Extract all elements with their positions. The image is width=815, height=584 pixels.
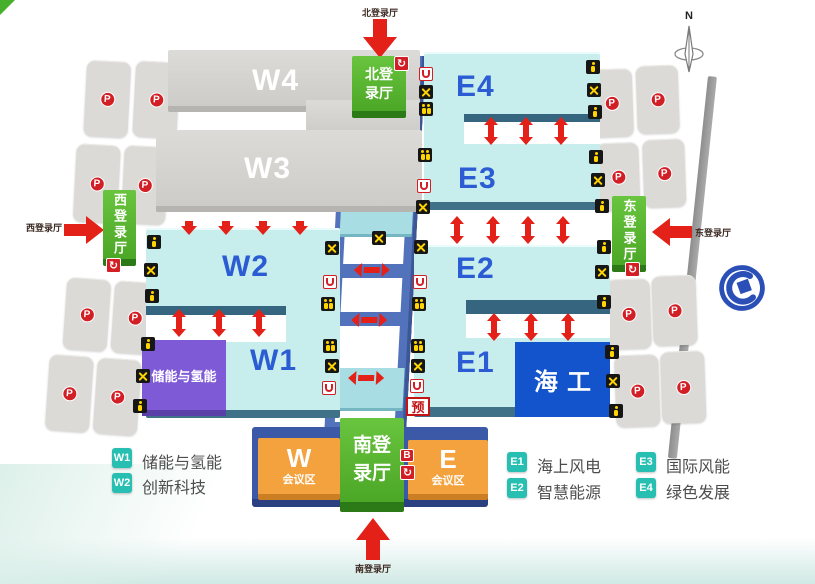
two-way-arrow xyxy=(171,310,187,336)
gate-icon xyxy=(147,235,161,249)
conference-west-label: 会议区 xyxy=(283,471,316,487)
east-entrance-arrow xyxy=(652,218,692,246)
two-way-arrow xyxy=(251,310,267,336)
restroom-icon xyxy=(323,339,337,353)
badge-pickup-icon: ↻ xyxy=(625,262,640,277)
restroom-icon xyxy=(418,148,432,162)
parking-lot: P xyxy=(83,60,131,138)
dining-icon xyxy=(325,359,339,373)
two-way-arrow xyxy=(349,370,384,386)
two-way-arrow xyxy=(354,262,389,278)
restroom-icon xyxy=(412,297,426,311)
two-way-arrow xyxy=(211,310,227,336)
corridor-cell xyxy=(341,278,403,312)
parking-icon: P xyxy=(656,165,672,181)
compass-north-label: N xyxy=(685,10,693,22)
two-way-arrow xyxy=(560,314,576,340)
entry-arrow xyxy=(181,221,197,236)
gate-icon xyxy=(605,345,619,359)
dining-icon xyxy=(419,85,433,99)
east-entrance-label: 东登录厅 xyxy=(695,226,731,239)
dining-icon xyxy=(414,240,428,254)
south-hall-text: 南登 xyxy=(353,432,391,461)
bus-stop-icon: B xyxy=(400,449,414,462)
badge-pickup-icon: ↻ xyxy=(400,465,415,480)
parking-lot: P xyxy=(651,275,697,346)
legend-badge-e1: E1 xyxy=(507,452,527,472)
two-way-arrow xyxy=(449,217,465,243)
gate-icon xyxy=(141,337,155,351)
two-way-arrow xyxy=(555,217,571,243)
legend-label-e4: 绿色发展 xyxy=(666,479,730,503)
parking-icon: P xyxy=(650,92,666,108)
zone-offshore: 海工 xyxy=(515,342,610,417)
hall-e4-label: E4 xyxy=(456,70,495,104)
compass: N xyxy=(666,6,712,70)
north-hall-text: 北登 xyxy=(365,65,393,84)
entry-arrow xyxy=(292,221,308,236)
parking-lot: P xyxy=(642,138,686,207)
west-registration-hall: 西登录厅 xyxy=(103,190,136,266)
dining-icon xyxy=(595,265,609,279)
corner-accent-top-left xyxy=(0,0,15,15)
west-entrance-arrow xyxy=(64,216,104,244)
hall-e2-label: E2 xyxy=(456,252,495,286)
two-way-arrow xyxy=(520,217,536,243)
parking-icon: P xyxy=(604,95,620,111)
hall-w1-label: W1 xyxy=(250,344,297,378)
gate-icon xyxy=(145,289,159,303)
parking-icon: P xyxy=(611,169,627,185)
dining-icon xyxy=(411,359,425,373)
parking-icon: P xyxy=(137,177,153,193)
two-way-arrow xyxy=(483,118,499,144)
conference-west-letter: W xyxy=(287,445,312,471)
hall-w3-label: W3 xyxy=(244,152,291,186)
two-way-arrow xyxy=(485,217,501,243)
corridor-cell xyxy=(337,326,399,372)
south-hall-text: 录厅 xyxy=(353,460,391,489)
dining-icon xyxy=(587,83,601,97)
dining-icon xyxy=(144,263,158,277)
service-icon xyxy=(419,67,433,81)
hall-e3-label: E3 xyxy=(458,162,497,196)
legend-label-e2: 智慧能源 xyxy=(537,479,601,503)
badge-pickup-icon: ↻ xyxy=(394,56,409,71)
parking-icon: P xyxy=(79,306,95,322)
parking-icon: P xyxy=(61,385,77,401)
north-entrance-label: 北登录厅 xyxy=(352,6,408,19)
dining-icon xyxy=(325,241,339,255)
parking-icon: P xyxy=(675,379,691,395)
north-entrance-arrow xyxy=(363,19,397,59)
gate-icon xyxy=(588,105,602,119)
dining-icon xyxy=(591,173,605,187)
restroom-icon xyxy=(321,297,335,311)
parking-icon: P xyxy=(109,389,125,405)
expo-floor-map: N P P P P P P P P P P xyxy=(0,0,815,584)
legend-label-e1: 海上风电 xyxy=(537,453,601,477)
legend-label-w1: 储能与氢能 xyxy=(142,449,222,473)
service-icon xyxy=(410,379,424,393)
gate-icon xyxy=(597,295,611,309)
parking-icon: P xyxy=(127,310,143,326)
south-entrance-arrow xyxy=(356,518,390,560)
legend-label-e3: 国际风能 xyxy=(666,453,730,477)
restroom-icon xyxy=(411,339,425,353)
legend-badge-w1: W1 xyxy=(112,448,132,468)
zone-energy-storage-label: 储能与氢能 xyxy=(151,366,216,385)
gate-icon xyxy=(609,404,623,418)
restroom-icon xyxy=(419,102,433,116)
north-hall-text: 录厅 xyxy=(365,84,393,103)
zone-energy-storage: 储能与氢能 xyxy=(142,340,226,416)
parking-lot: P xyxy=(45,354,94,433)
parking-icon: P xyxy=(667,303,683,319)
gate-icon xyxy=(595,199,609,213)
dining-icon xyxy=(606,374,620,388)
service-icon xyxy=(417,179,431,193)
parking-lot: P xyxy=(660,350,706,423)
conference-area-east: E 会议区 xyxy=(408,440,488,500)
legend-badge-e2: E2 xyxy=(507,478,527,498)
parking-icon: P xyxy=(630,383,646,399)
two-way-arrow xyxy=(352,312,387,328)
west-hall-text: 西登录厅 xyxy=(110,193,129,257)
conference-east-letter: E xyxy=(439,446,456,472)
west-entrance-label: 西登录厅 xyxy=(24,221,62,234)
conference-area-west: W 会议区 xyxy=(258,438,340,500)
legend-badge-e4: E4 xyxy=(636,478,656,498)
reservation-badge: 预 xyxy=(406,397,430,416)
south-entrance-label: 南登录厅 xyxy=(332,562,414,575)
two-way-arrow xyxy=(523,314,539,340)
parking-lot: P xyxy=(635,65,679,134)
conference-east-label: 会议区 xyxy=(432,472,465,488)
legend-badge-e3: E3 xyxy=(636,452,656,472)
hall-w2-label: W2 xyxy=(222,250,269,284)
two-way-arrow xyxy=(553,118,569,144)
legend-badge-w2: W2 xyxy=(112,473,132,493)
metro-logo-icon xyxy=(715,261,769,315)
service-icon xyxy=(322,381,336,395)
dining-icon xyxy=(136,369,150,383)
badge-pickup-icon: ↻ xyxy=(106,258,121,273)
parking-icon: P xyxy=(148,92,164,108)
parking-lot: P xyxy=(605,278,651,349)
parking-icon: P xyxy=(621,306,637,322)
hall-w4-label: W4 xyxy=(252,64,299,98)
parking-lot: P xyxy=(62,277,111,352)
entry-arrow xyxy=(218,221,234,236)
south-registration-hall: 南登 录厅 xyxy=(340,418,404,512)
two-way-arrow xyxy=(486,314,502,340)
east-registration-hall: 东登录厅 xyxy=(612,196,646,272)
gate-icon xyxy=(589,150,603,164)
service-icon xyxy=(323,275,337,289)
gate-icon xyxy=(133,399,147,413)
entry-arrow xyxy=(255,221,271,236)
dining-icon xyxy=(416,200,430,214)
zone-offshore-label: 海工 xyxy=(534,362,600,397)
parking-icon: P xyxy=(99,91,115,107)
gate-icon xyxy=(597,240,611,254)
dining-icon xyxy=(372,231,386,245)
parking-lot: P xyxy=(93,357,142,436)
gate-icon xyxy=(586,60,600,74)
service-icon xyxy=(413,275,427,289)
parking-icon: P xyxy=(89,176,105,192)
hall-e1-label: E1 xyxy=(456,346,495,380)
two-way-arrow xyxy=(518,118,534,144)
legend-label-w2: 创新科技 xyxy=(142,474,206,498)
parking-group-ne: P P P P xyxy=(585,62,690,213)
east-hall-text: 东登录厅 xyxy=(620,199,639,263)
